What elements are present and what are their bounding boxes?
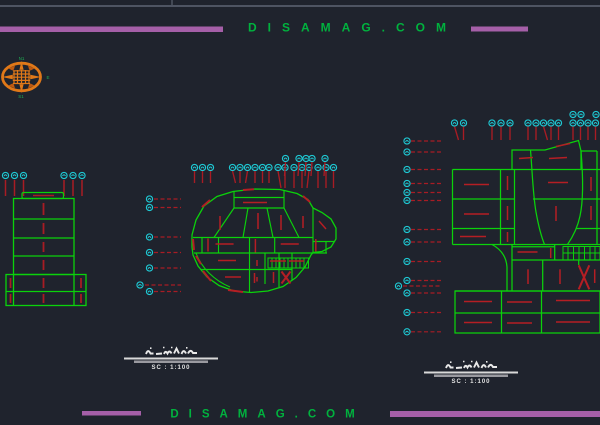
svg-text:DISAMAG.COM: DISAMAG.COM xyxy=(170,409,364,421)
svg-text:S1: S1 xyxy=(18,94,24,99)
svg-text:SC : 1:100: SC : 1:100 xyxy=(451,379,490,385)
svg-text:E: E xyxy=(46,75,49,80)
svg-text:DISAMAG.COM: DISAMAG.COM xyxy=(248,21,457,35)
svg-text:N1: N1 xyxy=(19,56,25,61)
svg-text:SC : 1:100: SC : 1:100 xyxy=(151,365,190,371)
